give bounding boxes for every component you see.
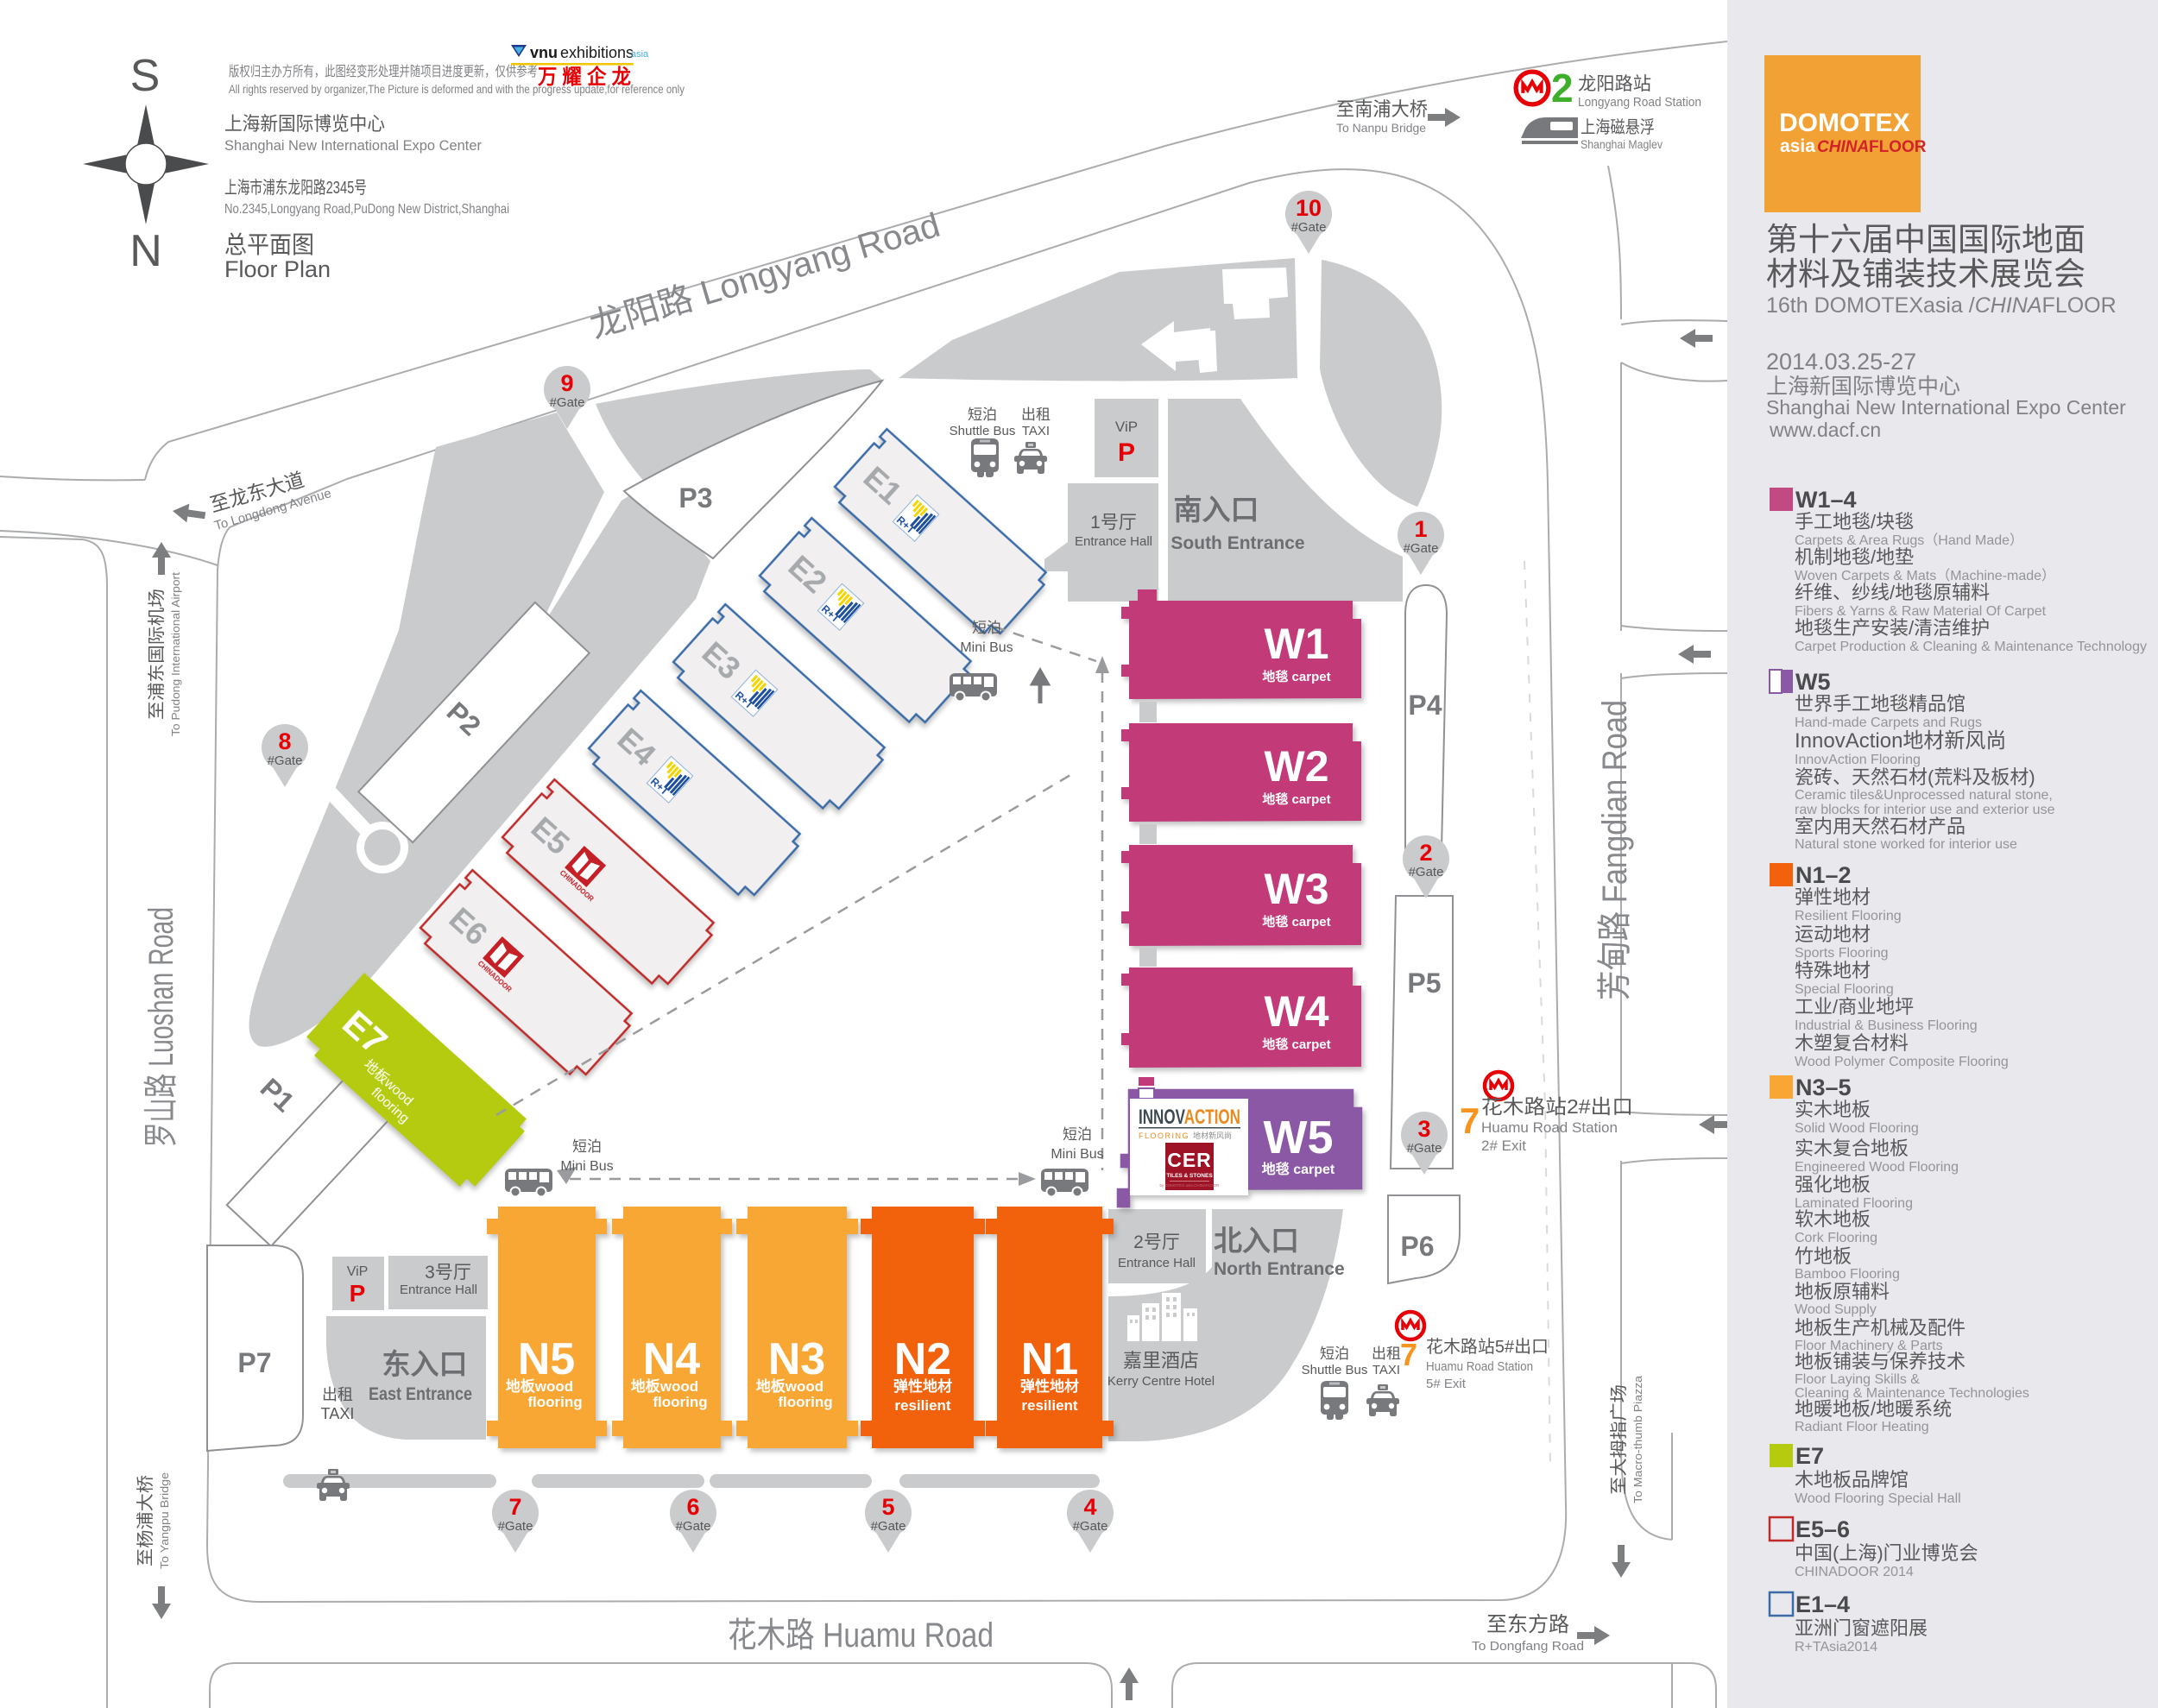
svg-text:resilient: resilient [1021, 1397, 1078, 1414]
svg-text:N4: N4 [643, 1334, 701, 1384]
svg-text:2014.03.25-27: 2014.03.25-27 [1766, 349, 1916, 375]
svg-text:#Gate: #Gate [1409, 865, 1444, 879]
svg-text:Entrance Hall: Entrance Hall [1075, 534, 1152, 549]
svg-text:中国(上海)门业博览会: 中国(上海)门业博览会 [1795, 1542, 1978, 1564]
svg-text:运动地材: 运动地材 [1795, 923, 1871, 945]
svg-text:2号厅: 2号厅 [1133, 1232, 1180, 1252]
svg-text:至南浦大桥: 至南浦大桥 [1336, 98, 1428, 120]
svg-text:出租: 出租 [1021, 407, 1051, 423]
svg-text:flooring: flooring [527, 1394, 582, 1410]
svg-text:N1–2: N1–2 [1795, 862, 1852, 888]
svg-text:2: 2 [1551, 66, 1574, 110]
svg-text:Wood Supply: Wood Supply [1795, 1302, 1877, 1317]
svg-text:南入口: 南入口 [1174, 494, 1259, 526]
svg-text:Engineered Wood Flooring: Engineered Wood Flooring [1795, 1160, 1959, 1175]
svg-text:Wood Polymer Composite Floorin: Wood Polymer Composite Flooring [1795, 1055, 2009, 1069]
svg-text:Mini Bus: Mini Bus [1051, 1147, 1103, 1162]
svg-text:N3–5: N3–5 [1795, 1075, 1852, 1100]
svg-text:FLOOR: FLOOR [1869, 138, 1927, 156]
svg-text:1号厅: 1号厅 [1090, 513, 1137, 533]
svg-text:4: 4 [1083, 1494, 1096, 1520]
svg-text:芳甸路 Fangdian Road: 芳甸路 Fangdian Road [1596, 700, 1634, 1000]
svg-text:To Macro-thumb Piazza: To Macro-thumb Piazza [1631, 1375, 1644, 1503]
svg-text:P6: P6 [1400, 1231, 1434, 1262]
svg-text:InnovAction Flooring: InnovAction Flooring [1795, 753, 1921, 767]
svg-text:3: 3 [1417, 1116, 1430, 1142]
svg-text:世界手工地毯精品馆: 世界手工地毯精品馆 [1795, 693, 1966, 715]
svg-text:Floor Plan: Floor Plan [224, 256, 331, 282]
svg-text:TAXI: TAXI [321, 1405, 355, 1422]
svg-text:N: N [129, 226, 162, 276]
svg-text:#Gate: #Gate [268, 753, 303, 768]
svg-text:Mini Bus: Mini Bus [960, 640, 1013, 655]
svg-text:#Gate: #Gate [871, 1519, 906, 1534]
svg-text:TAXI: TAXI [1372, 1363, 1400, 1377]
svg-text:16th DOMOTEXasia /CHINAFLOOR: 16th DOMOTEXasia /CHINAFLOOR [1766, 293, 2117, 318]
svg-text:N3: N3 [768, 1334, 825, 1384]
svg-text:flooring: flooring [653, 1394, 707, 1410]
svg-text:asia: asia [631, 49, 649, 60]
svg-text:asia: asia [1780, 136, 1815, 156]
svg-text:瓷砖、天然石材(荒料及板材): 瓷砖、天然石材(荒料及板材) [1795, 766, 2035, 788]
svg-text:花木路站2#出口: 花木路站2#出口 [1481, 1095, 1633, 1118]
svg-text:flooring: flooring [778, 1394, 832, 1410]
svg-text:实木复合地板: 实木复合地板 [1795, 1138, 1909, 1159]
svg-text:Bamboo Flooring: Bamboo Flooring [1795, 1267, 1900, 1282]
svg-text:No.2345,Longyang Road,PuDong N: No.2345,Longyang Road,PuDong New Distric… [224, 202, 509, 217]
svg-text:INNOVACTION: INNOVACTION [1139, 1106, 1240, 1129]
svg-text:Mini Bus: Mini Bus [560, 1159, 613, 1174]
svg-text:#Gate: #Gate [1291, 220, 1327, 235]
svg-text:Cork Flooring: Cork Flooring [1795, 1231, 1877, 1245]
svg-text:万 耀 企 龙: 万 耀 企 龙 [538, 65, 631, 89]
svg-text:Kerry Centre Hotel: Kerry Centre Hotel [1107, 1374, 1215, 1389]
svg-text:3号厅: 3号厅 [425, 1263, 471, 1283]
svg-text:弹性地材: 弹性地材 [1795, 886, 1871, 908]
svg-text:DOMOTEX: DOMOTEX [1779, 109, 1910, 137]
svg-text:W1: W1 [1265, 620, 1329, 668]
svg-text:InnovAction地材新风尚: InnovAction地材新风尚 [1795, 729, 2006, 753]
svg-text:Sports Flooring: Sports Flooring [1795, 946, 1889, 961]
svg-text:强化地板: 强化地板 [1795, 1174, 1871, 1195]
svg-text:北入口: 北入口 [1214, 1225, 1299, 1257]
svg-text:5: 5 [881, 1494, 894, 1520]
svg-text:9: 9 [560, 370, 573, 396]
svg-text:#Gate: #Gate [676, 1519, 711, 1534]
svg-text:短泊: 短泊 [1320, 1346, 1349, 1362]
svg-text:龙阳路站: 龙阳路站 [1578, 74, 1651, 94]
svg-text:地毯 carpet: 地毯 carpet [1262, 1161, 1335, 1177]
svg-text:东入口: 东入口 [382, 1348, 468, 1380]
svg-text:短泊: 短泊 [572, 1138, 602, 1155]
svg-text:5# Exit: 5# Exit [1426, 1377, 1467, 1391]
svg-text:Shanghai New International Exp: Shanghai New International Expo Center [1766, 396, 2126, 419]
svg-text:W5: W5 [1264, 1112, 1334, 1163]
svg-text:Ceramic tiles&Unprocessed natu: Ceramic tiles&Unprocessed natural stone, [1795, 788, 2053, 803]
svg-text:软木地板: 软木地板 [1795, 1208, 1871, 1230]
svg-text:Entrance Hall: Entrance Hall [1118, 1256, 1196, 1270]
svg-text:至大拇指广场: 至大拇指广场 [1609, 1384, 1629, 1495]
svg-text:实木地板: 实木地板 [1795, 1099, 1871, 1120]
svg-text:至杨浦大桥: 至杨浦大桥 [136, 1475, 155, 1566]
svg-text:W1–4: W1–4 [1795, 487, 1857, 513]
svg-text:Resilient Flooring: Resilient Flooring [1795, 909, 1902, 923]
svg-text:North Entrance: North Entrance [1214, 1259, 1345, 1279]
svg-text:#Gate: #Gate [1404, 541, 1439, 556]
svg-text:To Pudong International Airpor: To Pudong International Airport [169, 572, 182, 736]
svg-text:7: 7 [1400, 1337, 1417, 1372]
svg-text:工业/商业地坪: 工业/商业地坪 [1795, 996, 1914, 1018]
svg-text:2: 2 [1419, 840, 1432, 866]
svg-text:Solid Wood Flooring: Solid Wood Flooring [1795, 1121, 1919, 1136]
svg-text:www.dacf.cn: www.dacf.cn [1769, 419, 1881, 441]
svg-text:vnu: vnu [530, 44, 558, 61]
svg-text:W5: W5 [1795, 669, 1831, 695]
svg-text:地板wood: 地板wood [506, 1377, 573, 1395]
svg-text:出租: 出租 [322, 1386, 353, 1403]
svg-text:To Dongfang Road: To Dongfang Road [1472, 1639, 1584, 1654]
svg-text:地板wood: 地板wood [631, 1377, 698, 1395]
svg-text:FLOORING 地材新风尚: FLOORING 地材新风尚 [1139, 1131, 1232, 1140]
svg-text:木地板品牌馆: 木地板品牌馆 [1795, 1469, 1909, 1491]
svg-text:短泊: 短泊 [972, 620, 1001, 636]
svg-text:P3: P3 [678, 482, 712, 514]
svg-text:To Nanpu Bridge: To Nanpu Bridge [1336, 121, 1426, 135]
svg-text:E7: E7 [1795, 1443, 1824, 1469]
svg-text:Shanghai Maglev: Shanghai Maglev [1581, 137, 1663, 151]
svg-text:Shuttle Bus: Shuttle Bus [1302, 1363, 1368, 1377]
svg-text:地毯 carpet: 地毯 carpet [1262, 669, 1330, 684]
svg-text:Carpet Production & Cleaning &: Carpet Production & Cleaning & Maintenan… [1795, 640, 2147, 654]
svg-text:地毯生产安装/清洁维护: 地毯生产安装/清洁维护 [1795, 617, 1990, 639]
svg-text:弹性地材: 弹性地材 [893, 1377, 952, 1395]
svg-text:#Gate: #Gate [498, 1519, 533, 1534]
svg-text:出租: 出租 [1372, 1346, 1401, 1362]
svg-text:ViP: ViP [1115, 419, 1138, 435]
svg-text:#Gate: #Gate [1407, 1141, 1442, 1156]
svg-text:P4: P4 [1408, 690, 1442, 721]
svg-text:ViP: ViP [347, 1264, 369, 1279]
svg-text:Shuttle Bus: Shuttle Bus [950, 424, 1016, 438]
svg-text:Wood Flooring Special Hall: Wood Flooring Special Hall [1795, 1491, 1961, 1506]
svg-text:Natural stone worked for inter: Natural stone worked for interior use [1795, 837, 2017, 852]
svg-text:S: S [130, 51, 161, 101]
svg-text:手工地毯/块毯: 手工地毯/块毯 [1795, 511, 1914, 533]
svg-text:地暖地板/地暖系统: 地暖地板/地暖系统 [1795, 1398, 1952, 1420]
svg-text:弹性地材: 弹性地材 [1020, 1377, 1079, 1395]
svg-text:6: 6 [686, 1494, 699, 1520]
svg-text:E5–6: E5–6 [1795, 1516, 1850, 1542]
svg-text:N5: N5 [518, 1334, 575, 1384]
svg-text:#Gate: #Gate [1073, 1519, 1108, 1534]
svg-text:W4: W4 [1265, 987, 1329, 1036]
svg-text:总平面图: 总平面图 [224, 231, 314, 258]
svg-text:TILES & STONES: TILES & STONES [1166, 1173, 1213, 1179]
svg-text:版权归主办方所有，此图经变形处理并随项目进度更新，仅供参考: 版权归主办方所有，此图经变形处理并随项目进度更新，仅供参考 [229, 64, 538, 79]
svg-text:地板生产机械及配件: 地板生产机械及配件 [1795, 1317, 1966, 1339]
svg-text:TAXI: TAXI [1022, 424, 1050, 438]
svg-text:Entrance Hall: Entrance Hall [400, 1283, 477, 1297]
svg-text:Hand-made Carpets and Rugs: Hand-made Carpets and Rugs [1795, 715, 1982, 730]
svg-text:by DOMOTEX asia CHINAFLOOR: by DOMOTEX asia CHINAFLOOR [1159, 1183, 1220, 1188]
svg-text:Shanghai New International Exp: Shanghai New International Expo Center [224, 137, 482, 154]
svg-text:竹地板: 竹地板 [1795, 1245, 1852, 1267]
svg-text:至东方路: 至东方路 [1486, 1613, 1569, 1636]
svg-text:机制地毯/地垫: 机制地毯/地垫 [1795, 546, 1914, 568]
svg-text:Radiant Floor Heating: Radiant Floor Heating [1795, 1420, 1929, 1434]
svg-text:地板wood: 地板wood [756, 1377, 823, 1395]
svg-text:R+TAsia2014: R+TAsia2014 [1795, 1640, 1877, 1654]
svg-text:East Entrance: East Entrance [369, 1384, 472, 1404]
svg-text:短泊: 短泊 [1063, 1126, 1092, 1143]
svg-text:罗山路 Luoshan Road: 罗山路 Luoshan Road [142, 907, 180, 1147]
svg-text:材料及铺装技术展览会: 材料及铺装技术展览会 [1766, 256, 2085, 292]
svg-text:上海新国际博览中心: 上海新国际博览中心 [1766, 375, 1960, 399]
svg-text:Longyang Road Station: Longyang Road Station [1578, 95, 1701, 110]
svg-text:亚洲门窗遮阳展: 亚洲门窗遮阳展 [1795, 1617, 1928, 1639]
svg-text:地板原辅料: 地板原辅料 [1795, 1281, 1890, 1302]
svg-text:短泊: 短泊 [968, 407, 997, 423]
svg-text:地毯 carpet: 地毯 carpet [1262, 791, 1330, 807]
svg-text:2# Exit: 2# Exit [1481, 1138, 1526, 1154]
svg-text:花木路站5#出口: 花木路站5#出口 [1426, 1337, 1549, 1357]
svg-text:W2: W2 [1265, 742, 1329, 791]
svg-text:7: 7 [1460, 1100, 1480, 1141]
svg-text:P5: P5 [1407, 967, 1441, 999]
svg-text:室内用天然石材产品: 室内用天然石材产品 [1795, 816, 1966, 837]
svg-text:地板铺装与保养技术: 地板铺装与保养技术 [1795, 1351, 1966, 1372]
svg-text:地毯 carpet: 地毯 carpet [1262, 914, 1330, 930]
svg-text:P: P [350, 1280, 366, 1307]
svg-text:嘉里酒店: 嘉里酒店 [1123, 1350, 1199, 1371]
svg-text:第十六届中国国际地面: 第十六届中国国际地面 [1766, 222, 2085, 257]
svg-text:P: P [1118, 438, 1135, 467]
svg-text:N1: N1 [1021, 1334, 1078, 1384]
svg-text:木塑复合材料: 木塑复合材料 [1795, 1032, 1909, 1054]
svg-text:Floor Laying Skills &: Floor Laying Skills & [1795, 1372, 1920, 1387]
svg-text:Huamu Road Station: Huamu Road Station [1426, 1359, 1533, 1374]
svg-text:To Yangpu Bridge: To Yangpu Bridge [158, 1472, 171, 1569]
svg-text:CHINADOOR 2014: CHINADOOR 2014 [1795, 1565, 1914, 1579]
svg-text:CER: CER [1167, 1149, 1212, 1171]
svg-text:花木路 Huamu Road: 花木路 Huamu Road [728, 1617, 994, 1654]
svg-text:Huamu Road Station: Huamu Road Station [1481, 1119, 1618, 1136]
svg-text:P7: P7 [237, 1347, 271, 1378]
svg-text:exhibitions: exhibitions [560, 44, 634, 61]
svg-text:上海新国际博览中心: 上海新国际博览中心 [224, 113, 385, 135]
svg-text:CHINA: CHINA [1817, 138, 1869, 156]
svg-text:Industrial & Business Flooring: Industrial & Business Flooring [1795, 1018, 1978, 1033]
svg-text:#Gate: #Gate [550, 395, 585, 410]
svg-text:10: 10 [1296, 195, 1322, 221]
svg-text:至浦东国际机场: 至浦东国际机场 [147, 589, 167, 720]
svg-text:8: 8 [278, 728, 291, 754]
svg-text:E1–4: E1–4 [1795, 1591, 1850, 1617]
svg-text:resilient: resilient [894, 1397, 951, 1414]
svg-text:上海磁悬浮: 上海磁悬浮 [1581, 117, 1655, 137]
svg-text:W3: W3 [1265, 865, 1329, 913]
svg-text:South Entrance: South Entrance [1170, 533, 1304, 553]
svg-text:Special Flooring: Special Flooring [1795, 982, 1894, 997]
svg-text:特殊地材: 特殊地材 [1795, 960, 1871, 981]
svg-text:地毯 carpet: 地毯 carpet [1262, 1037, 1330, 1052]
svg-text:N2: N2 [894, 1334, 951, 1384]
svg-text:7: 7 [508, 1494, 521, 1520]
svg-text:上海市浦东龙阳路2345号: 上海市浦东龙阳路2345号 [224, 178, 367, 198]
svg-text:纤维、纱线/地毯原辅料: 纤维、纱线/地毯原辅料 [1795, 582, 1990, 603]
svg-text:1: 1 [1414, 516, 1427, 542]
